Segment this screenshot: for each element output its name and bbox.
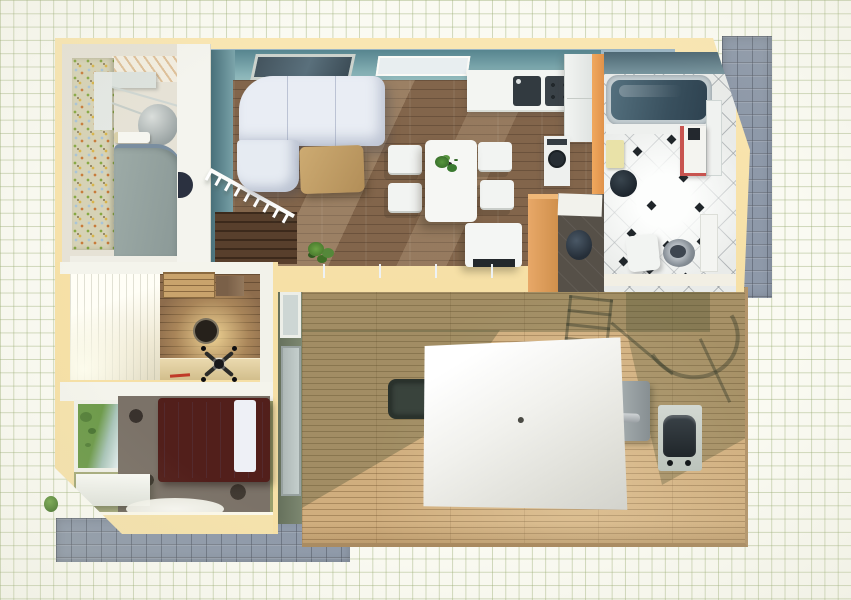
grill-wheels xyxy=(667,460,673,466)
plant-pot xyxy=(610,170,637,197)
dining-table xyxy=(425,140,477,222)
fridge-cabinet xyxy=(564,54,593,142)
office-bottom-wall xyxy=(60,382,273,392)
deck-floor xyxy=(302,287,748,547)
entry-hall xyxy=(62,44,182,274)
umbrella-pole-tip xyxy=(518,417,524,423)
chair-casters xyxy=(201,346,206,351)
pillow xyxy=(234,400,256,472)
apartment-block xyxy=(55,38,750,292)
swivel-chair xyxy=(199,344,239,384)
open-door xyxy=(558,193,603,217)
living-window xyxy=(376,56,471,76)
bathroom-top-wall xyxy=(604,52,734,76)
chair-hub xyxy=(214,359,224,369)
deck-wall-window xyxy=(280,292,301,338)
oven-door xyxy=(548,150,566,168)
dining-chair xyxy=(388,145,422,175)
office-right-wall xyxy=(260,262,273,392)
bath-water xyxy=(611,80,707,120)
double-bed xyxy=(158,398,270,482)
orange-wall-lower xyxy=(528,194,558,292)
bright-window-wall xyxy=(70,274,162,380)
shelf-unit-side xyxy=(94,72,112,130)
wardrobe xyxy=(114,144,182,260)
barbecue-grill xyxy=(663,415,696,457)
toilet-tank xyxy=(625,233,661,272)
deck xyxy=(278,284,748,548)
kitchen-sink xyxy=(513,76,541,106)
coffee-table xyxy=(299,145,365,194)
bathroom-bottom-wall xyxy=(604,274,736,286)
slatted-shelf xyxy=(163,272,215,298)
corner-sofa xyxy=(239,76,385,146)
table-plant xyxy=(435,156,449,168)
floor-plant xyxy=(308,242,324,256)
grill-pad xyxy=(658,405,702,471)
faucet xyxy=(688,128,700,140)
toilet-bowl xyxy=(663,239,695,267)
patio-umbrella-canopy xyxy=(420,337,627,519)
dining-chair xyxy=(478,142,512,172)
deck-glass-door xyxy=(281,346,301,496)
oven xyxy=(544,136,570,186)
floorplan-scene xyxy=(0,0,851,600)
orange-wall-upper xyxy=(592,54,604,196)
towel-bar xyxy=(114,132,150,143)
hall-alcove xyxy=(558,194,604,292)
gray-vase xyxy=(566,230,592,260)
vanity-sink xyxy=(680,126,706,176)
bathroom-side-door xyxy=(700,214,718,272)
towel xyxy=(606,140,624,168)
garden-window xyxy=(74,400,122,472)
door-handle xyxy=(178,172,193,198)
dining-chair xyxy=(480,180,514,210)
shrub xyxy=(44,496,58,512)
shelf-books xyxy=(216,276,244,296)
bathtub xyxy=(606,75,712,125)
bench-seat xyxy=(465,223,522,267)
deck-edge-shade xyxy=(302,523,748,547)
dining-chair xyxy=(388,183,422,213)
shower-panel xyxy=(706,100,722,176)
round-wall-lamp xyxy=(193,318,219,344)
closet-rod xyxy=(112,86,178,107)
corner-sofa-chaise xyxy=(237,140,299,192)
home-office xyxy=(60,262,273,392)
left-wing xyxy=(55,262,278,534)
entry-door-band xyxy=(177,44,211,292)
